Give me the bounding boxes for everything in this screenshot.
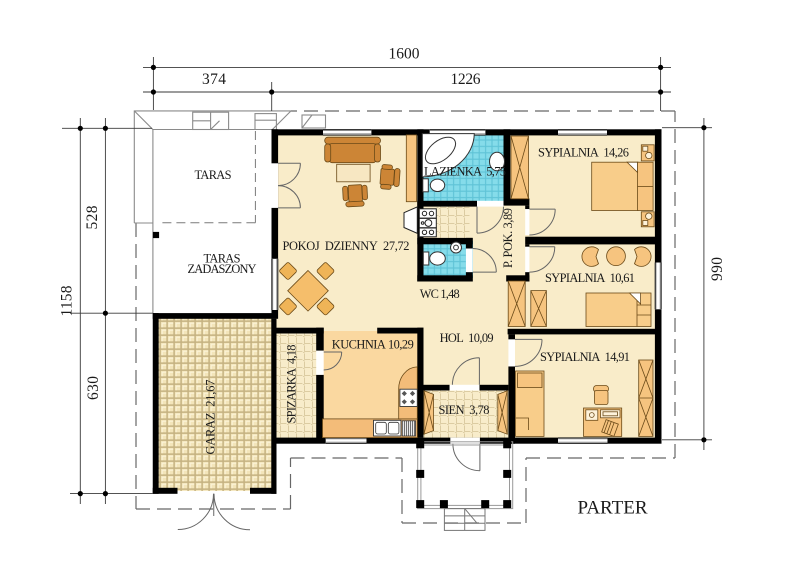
svg-text:SYPIALNIA 14,26: SYPIALNIA 14,26	[538, 145, 629, 159]
svg-text:HOL 10,09: HOL 10,09	[440, 331, 494, 345]
svg-text:374: 374	[202, 71, 226, 88]
svg-text:LAZIENKA 5,75: LAZIENKA 5,75	[424, 164, 506, 178]
svg-text:990: 990	[709, 257, 726, 281]
svg-text:SYPIALNIA 10,61: SYPIALNIA 10,61	[545, 271, 635, 285]
svg-text:1600: 1600	[389, 46, 420, 63]
svg-text:630: 630	[85, 376, 102, 400]
svg-text:1226: 1226	[451, 71, 481, 88]
svg-text:PARTER: PARTER	[578, 498, 648, 519]
svg-text:SPIZARKA 4,18: SPIZARKA 4,18	[285, 345, 299, 424]
svg-text:SYPIALNIA 14,91: SYPIALNIA 14,91	[540, 350, 630, 364]
svg-text:ZADASZONY: ZADASZONY	[188, 262, 257, 276]
svg-text:POKOJ DZIENNY 27,72: POKOJ DZIENNY 27,72	[283, 239, 410, 253]
svg-text:SIEN 3,78: SIEN 3,78	[439, 403, 490, 417]
svg-text:WC 1,48: WC 1,48	[420, 287, 460, 301]
svg-text:TARAS: TARAS	[195, 168, 232, 182]
svg-text:P. POK. 3,89: P. POK. 3,89	[501, 208, 515, 268]
svg-text:1158: 1158	[59, 285, 76, 316]
svg-text:KUCHNIA 10,29: KUCHNIA 10,29	[332, 337, 414, 351]
svg-text:GARAZ 21,67: GARAZ 21,67	[204, 380, 218, 455]
svg-text:528: 528	[84, 205, 101, 229]
